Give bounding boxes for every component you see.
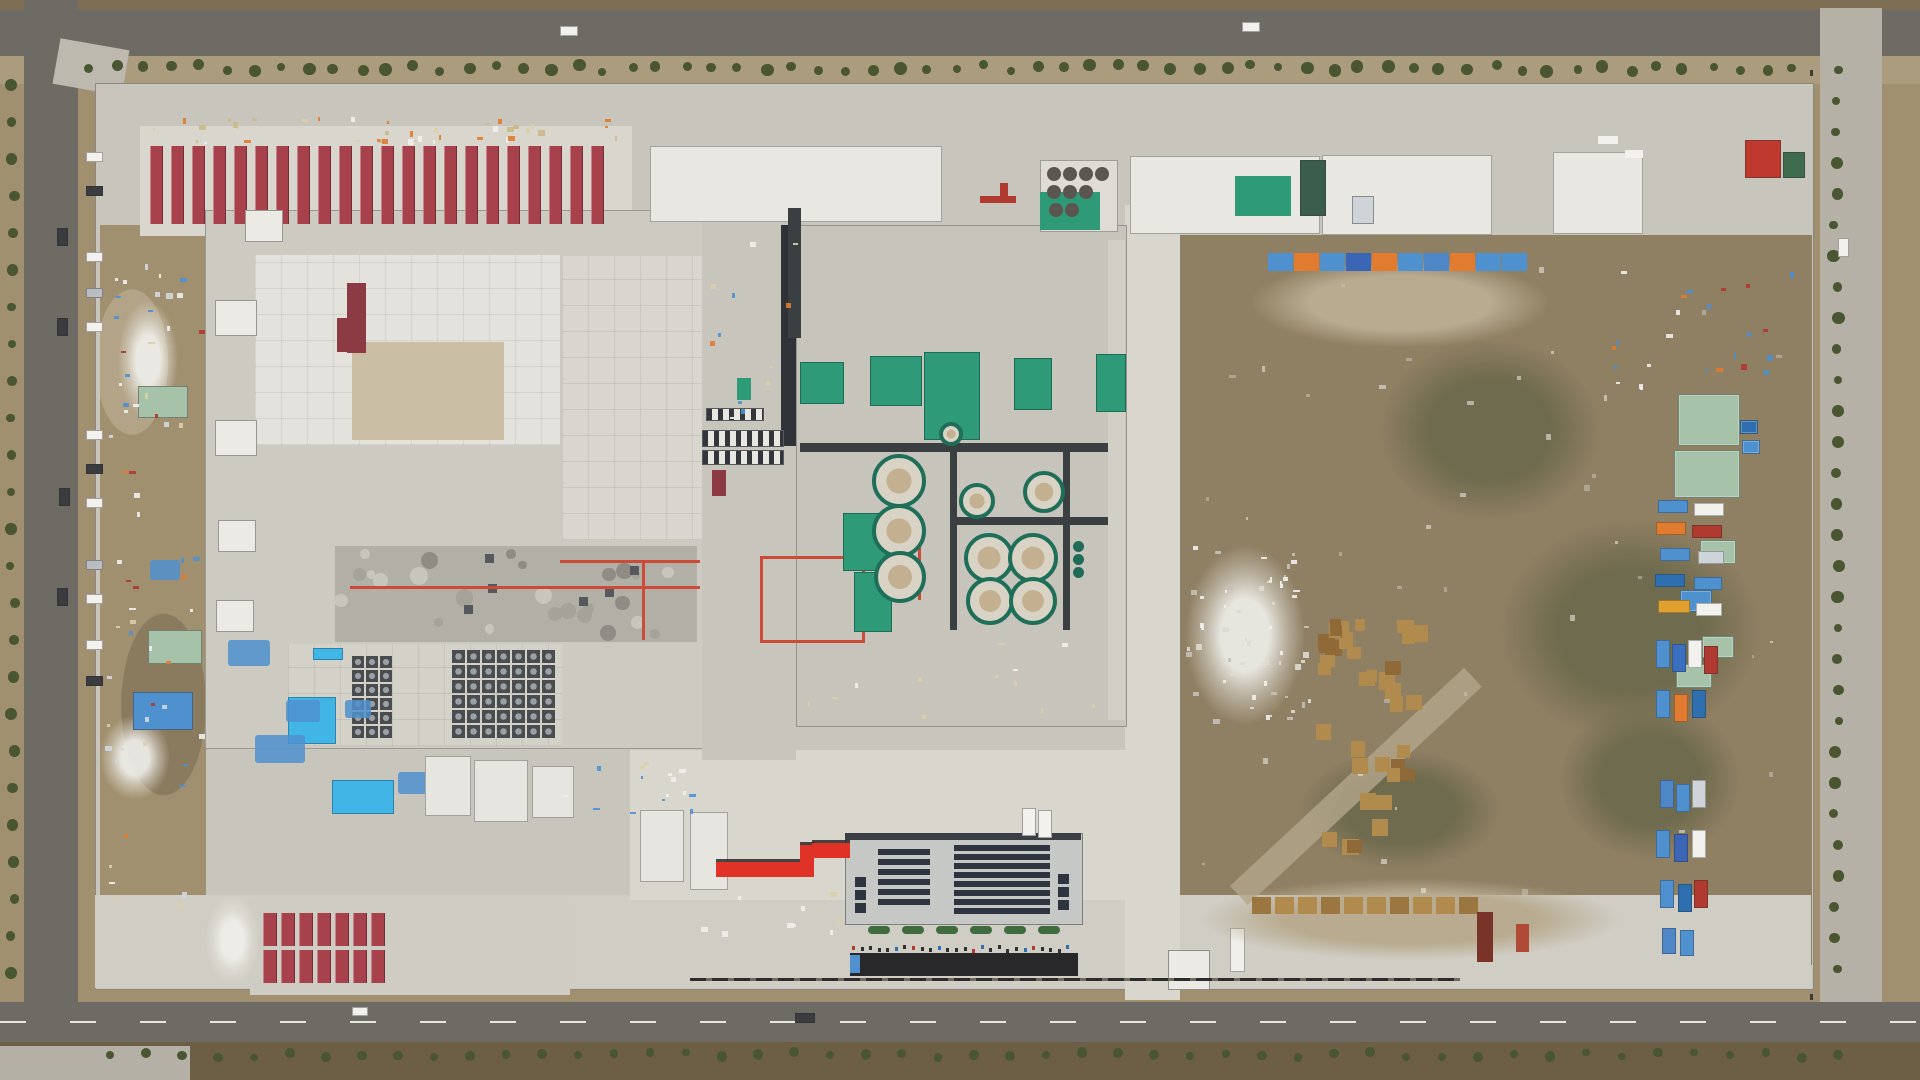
pallet-stack [1400,769,1415,781]
cooling-fan [380,684,392,696]
dormitory-row [360,146,373,224]
small-building [1745,140,1781,178]
construction-debris [252,118,257,122]
scattered-materials [164,422,169,426]
scattered-materials [1621,271,1626,274]
tree [1787,64,1796,73]
construction-debris [153,128,155,131]
cooling-fan [542,710,555,723]
stair-tower [216,600,254,632]
rooftop-fan-unit [619,565,631,577]
construction-debris [439,135,442,140]
parked-truck [1678,884,1692,912]
cooling-fan [527,680,540,693]
tree [7,783,18,794]
construction-debris [244,140,251,143]
dormitory-row-south [317,950,331,983]
construction-debris [770,366,773,368]
tree [1582,1049,1589,1056]
construction-debris [832,697,838,699]
pallet-stack [1372,819,1389,836]
yard-debris [1752,655,1754,658]
cooling-fan [497,725,510,738]
worker-figure [1032,946,1035,950]
annex-building [640,810,684,882]
scattered-materials [193,557,200,561]
parked-car [86,430,103,440]
pallet-stack-row [1459,897,1478,914]
pallet-stack-row [1252,897,1271,914]
pallet-stack-row [1367,897,1386,914]
parked-truck [1660,880,1674,908]
pallet-stack [1375,795,1392,809]
cooling-fan [542,725,555,738]
debris-white [1191,590,1197,596]
tank-cluster-unit [1063,185,1077,199]
aerial-photo-construction-site [0,0,1920,1080]
tree [841,67,850,76]
tank-cluster-unit [1049,203,1063,217]
solar-panel-row [954,881,1050,887]
debris-white [1283,577,1288,581]
tree [1245,60,1255,70]
storage-silo [1073,567,1084,578]
cooling-fan [527,650,540,663]
construction-debris [668,773,673,776]
scattered-materials [122,471,128,473]
construction-debris [830,930,833,935]
vehicle-on-road [1022,808,1036,836]
crane-part [980,196,1016,203]
tree [407,60,418,71]
tree [285,1048,295,1058]
cooling-fan [380,698,392,710]
scattered-materials [181,558,184,563]
scattered-materials [107,676,112,679]
landscape-bush [902,926,924,934]
cooling-fan [452,650,465,663]
rooftop-ahu-unit [485,554,494,563]
tree [1545,1051,1556,1062]
tree [1829,221,1838,230]
cooling-fan [467,680,480,693]
debris-white [1308,699,1311,703]
construction-debris [738,896,741,900]
debris-white [1215,551,1220,553]
debris-white [1287,717,1293,720]
cooling-fan [512,710,525,723]
debris-white [1193,546,1197,550]
tarp-covered-materials [1398,253,1423,271]
debris-white [1271,692,1276,695]
scattered-materials [1676,310,1679,315]
worker-figure [1066,945,1069,949]
cooling-fan [512,650,525,663]
yard-debris [1246,517,1248,520]
worker-figure [964,947,967,951]
debris-white [1240,662,1245,665]
worker-figure [1049,948,1052,952]
vehicle-on-road [57,588,68,606]
worker-figure [946,948,949,952]
construction-debris [183,118,185,124]
tree [1059,62,1069,72]
yard-debris [1304,626,1309,629]
rooftop-fan-unit [662,567,673,578]
scattered-materials [199,330,206,334]
construction-debris [597,766,601,771]
tree [1329,1049,1338,1058]
tree [1042,1051,1050,1059]
scattered-materials [182,892,187,897]
tree [1510,1050,1518,1058]
tree [1832,97,1840,105]
tree [1301,62,1313,74]
tree [1831,157,1843,169]
rooftop-fan-unit [548,607,562,621]
parked-truck [1655,574,1685,587]
stair-tower [245,210,283,242]
tree [1596,60,1609,73]
scattered-materials [190,609,193,613]
worker-figure [929,948,932,952]
tree [1676,63,1688,75]
dark-red-roof-strip [347,283,366,353]
tree [1409,63,1419,73]
construction-debris [477,137,484,140]
red-pipe-line [560,560,700,563]
yard-debris [1202,863,1205,865]
construction-debris [526,128,529,133]
scattered-materials [117,560,122,565]
scattered-materials [134,493,140,498]
rooftop-ahu-unit [464,605,473,614]
tree [357,1051,366,1060]
tree [303,63,316,76]
water-basin [332,780,394,814]
dormitory-row-south [263,913,277,946]
pallet-stack-row [1436,897,1455,914]
pallet-stack-row [1275,897,1294,914]
green-equipment-pad [1014,358,1052,410]
tree [953,65,961,73]
scattered-materials [1612,346,1616,349]
scattered-materials [130,620,136,624]
tree [249,65,261,77]
tarp-covered-materials [1450,253,1475,271]
rooftop-fan-unit [353,568,366,581]
tree [1365,1047,1375,1057]
scattered-materials [167,326,170,331]
tree [8,856,19,867]
construction-debris [387,121,389,125]
dormitory-row [486,146,499,224]
vehicle-on-road [1838,238,1849,257]
solar-panel-unit [1058,900,1069,910]
debris-white [1261,557,1267,559]
debris-white [1228,658,1230,662]
tree [9,745,20,756]
scattered-materials [133,586,139,589]
green-equipment-pad [800,362,844,404]
cooling-fan [467,725,480,738]
tree [430,1053,438,1061]
stair-tower [215,420,257,456]
tree [465,1051,475,1061]
rooftop-fan-unit [535,587,552,604]
scattered-materials [124,410,128,413]
tree [7,488,15,496]
clarifier-tank [872,504,926,558]
tree [1834,376,1842,384]
tank-cluster-unit [1079,185,1093,199]
landscape-bush [1038,926,1060,934]
scattered-materials [125,374,130,376]
tree [1834,66,1843,75]
yard-light-patch [1250,258,1550,348]
rooftop-fan-unit [650,629,660,639]
construction-debris [644,762,649,764]
tree [7,376,17,386]
scattered-materials [179,423,183,428]
tree [10,894,19,903]
construction-debris [302,119,308,122]
yard-debris [1358,774,1363,777]
tree [1186,1052,1193,1059]
scattered-materials [180,278,187,282]
parked-car [86,676,103,686]
cooling-fan [352,670,364,682]
dormitory-row-south [353,913,367,946]
scattered-materials [116,296,121,298]
solar-panel-unit [1058,887,1069,897]
scattered-materials [119,383,122,386]
debris-white [1285,696,1288,698]
yard-debris [1306,394,1309,397]
pallet-stack [1351,741,1364,757]
tree [8,228,18,238]
cooling-fan [452,680,465,693]
rooftop-fan-unit [334,594,348,608]
rooftop-fan-unit [410,567,428,585]
tree [502,1050,510,1058]
tree [1113,59,1124,70]
construction-debris [641,776,643,778]
tarp-covered-pile [345,700,371,718]
construction-debris [615,136,617,141]
scattered-materials [1614,366,1617,369]
cooling-fan [380,656,392,668]
parked-truck [1676,784,1690,812]
tree [84,64,94,74]
construction-debris [204,142,207,145]
dark-red-roof-strip [337,318,349,352]
rooftop-ahu-unit [630,566,639,575]
tree [826,1051,834,1059]
cooling-fan [352,726,364,738]
construction-debris [766,381,770,385]
dormitory-row-south [371,950,385,983]
construction-debris [1041,708,1043,713]
tree [5,79,17,91]
yard-vegetation-patch [1380,340,1600,520]
dormitory-row [213,146,226,224]
dormitory-row-south [353,950,367,983]
construction-debris [531,124,534,129]
debris-white [1301,660,1305,663]
annex-building [474,760,528,822]
scattered-materials [1647,364,1651,367]
cooling-fan [366,684,378,696]
scattered-materials [178,903,183,908]
dormitory-row [402,146,415,224]
tree [223,66,231,74]
worker-figure [1015,947,1018,951]
cooling-fan [380,726,392,738]
construction-debris [741,409,746,414]
landscape-bush [936,926,958,934]
cooling-fan [380,670,392,682]
water-basin [313,648,343,660]
construction-debris [808,701,810,706]
tree [979,60,988,69]
tree [537,1049,547,1059]
cooling-fan [497,695,510,708]
cooling-fan [452,725,465,738]
tree [1627,66,1638,77]
construction-debris [995,675,998,678]
debris-white [1270,577,1272,583]
tree [435,67,444,76]
rooftop-fan-unit [434,618,442,626]
construction-debris [413,140,417,142]
tree [753,1049,764,1060]
tarp-covered-pile [150,560,180,580]
construction-debris [630,812,636,814]
tree [464,63,475,74]
worker-figure [895,947,898,951]
yard-debris [1406,358,1413,361]
yard-debris [1702,310,1706,315]
scattered-materials [1686,290,1693,293]
tree [1690,1049,1697,1056]
construction-debris [711,284,716,289]
cooling-fan [512,725,525,738]
tree [1829,777,1840,788]
cooling-fan [527,665,540,678]
construction-debris [1013,669,1017,672]
scattered-materials [107,724,110,727]
dormitory-row-south [281,913,295,946]
scattered-materials [181,575,187,579]
tree [1473,1052,1484,1063]
tree [1762,1048,1771,1057]
tree [1832,654,1842,664]
clarifier-tank [1008,533,1058,583]
tree [1432,63,1444,75]
worker-figure [852,946,855,950]
yard-debris [1444,587,1446,592]
cooling-fan [527,725,540,738]
small-building [1352,196,1374,224]
tree [9,191,20,202]
pipe-rack [950,443,957,630]
tank-cluster-unit [1063,167,1077,181]
cooling-fan [467,710,480,723]
debris-white [1272,602,1275,605]
tarp-covered-materials [1372,253,1397,271]
equipment-blue [850,955,860,973]
debris-white [1291,560,1297,563]
parked-car [86,560,103,570]
tree [358,65,369,76]
cooling-fan [352,684,364,696]
tree [706,63,716,73]
construction-debris [683,791,686,795]
construction-debris [918,677,922,680]
worker-figure [1058,949,1061,953]
dormitory-row [171,146,184,224]
construction-debris [508,136,515,140]
scattered-materials [1790,272,1794,278]
scaffold-walkway [706,408,764,421]
tarp-covered-materials [1268,253,1293,271]
tree [393,1051,402,1060]
vehicle-on-road [352,1007,368,1016]
tree [1438,1053,1446,1061]
construction-debris [689,794,696,797]
worker-figure [989,948,992,952]
scattered-materials [133,404,140,407]
tree [250,1054,257,1061]
parked-truck [1672,644,1686,672]
tree [5,523,16,534]
parked-truck [1680,930,1694,956]
construction-debris [998,643,1005,646]
tree [1831,529,1843,541]
tree [7,450,16,459]
tree [786,62,795,71]
tree [814,66,823,75]
construction-debris [640,766,645,769]
yard-debris [1551,351,1554,354]
parked-car [86,594,103,604]
scattered-materials [177,293,183,298]
cooling-fan [467,665,480,678]
tree [5,708,17,720]
debris-white [1250,707,1254,709]
construction-debris [750,242,757,246]
tree [1833,685,1844,696]
tree [1833,560,1845,572]
construction-debris [732,293,734,299]
worker-figure [869,946,872,950]
cooling-fan [497,680,510,693]
solar-panel-row [954,908,1050,914]
construction-debris [690,809,693,814]
cooling-fan [452,695,465,708]
scattered-materials [1763,329,1767,333]
tree [574,1051,582,1059]
worker-figure [861,947,864,951]
debris-white [1266,715,1270,720]
tarp-covered-materials [1424,253,1449,271]
construction-debris [418,136,422,142]
parked-truck [1656,690,1670,718]
stair-tower [215,300,257,336]
scattered-materials [121,351,126,353]
parked-truck [1688,640,1702,668]
